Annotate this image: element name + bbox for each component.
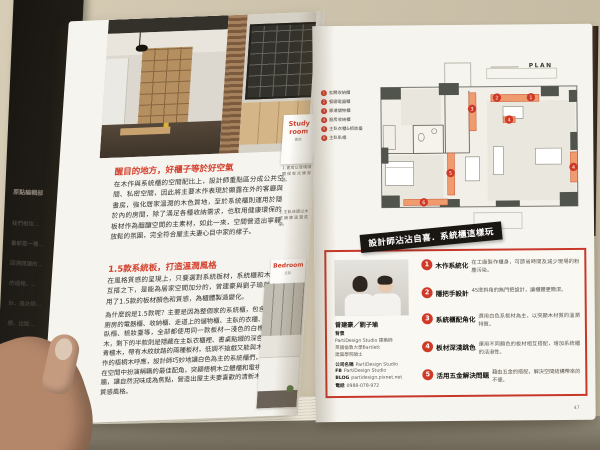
tip-num-icon: 1 — [421, 259, 432, 270]
company-row: 公司名稱PartiDesign Studio — [335, 361, 398, 368]
tip-num-icon: 2 — [422, 287, 433, 298]
svg-text:3: 3 — [470, 107, 473, 113]
white-cabinet — [102, 58, 129, 125]
tip-item-3: 3 系統櫃配角化 選用白色系板材為主，以突顯木材質的溫潤特質。 — [422, 312, 580, 329]
tip-title: 活用五金解決問題 — [436, 370, 489, 380]
tip-item-4: 4 板材深淺跳色 運用不同顏色的板材相互搭配，增加系統櫃的活潑性。 — [422, 340, 580, 357]
svg-text:4: 4 — [508, 117, 511, 123]
section1-body: 在木作與系統櫃的空間配比上，設計師重點區分成公共空間、私密空間，因此將主要木作表… — [110, 173, 284, 242]
right-page-number: 47 — [574, 406, 580, 411]
tip-title: 板材深淺跳色 — [436, 342, 476, 352]
tip-title: 木作系統化 — [435, 260, 468, 270]
tip-num-icon: 4 — [422, 341, 433, 352]
blog-row: BLOGpartidesign.pixnet.net — [335, 375, 402, 381]
tip-desc: 運用不同顏色的板材相互搭配，增加系統櫃的活潑性。 — [479, 341, 581, 357]
svg-text:1: 1 — [529, 95, 532, 101]
svg-text:4: 4 — [572, 165, 575, 171]
yellow-chair — [164, 123, 169, 128]
tip-desc: 選用白色系板材為主，以突顯木材質的溫潤特質。 — [478, 313, 580, 329]
thumb-nail — [53, 337, 74, 362]
designer-portrait — [334, 259, 408, 316]
tel-row: 電話0988-078-972 — [335, 383, 379, 389]
company-value: PartiDesign Studio — [356, 362, 398, 367]
floor-plan: 2 1 3 4 4 5 6 — [353, 58, 591, 246]
blog-label: BLOG — [335, 376, 349, 381]
fb-value: PartiDesign Studio — [344, 369, 386, 374]
head — [353, 279, 366, 293]
tip-desc: 藉由五金的搭配，解決空間結構帶來的不便。 — [492, 369, 580, 385]
svg-text:5: 5 — [449, 171, 452, 177]
black-page-line: 書都是一種… — [11, 239, 44, 248]
section2-body-2: 為什麼說是1.5款呢？主要是因為整個家的系統櫃，包含廚房的電器櫃、收納櫃、走道上… — [100, 305, 266, 398]
tip-title: 系統櫃配角化 — [436, 314, 476, 324]
tip-num-icon: 3 — [422, 313, 433, 324]
background-line: 英國倫敦大學Bartlett — [335, 345, 380, 351]
gutter-shadow-right — [312, 26, 337, 422]
tip-desc: 在工廠製作櫃身，可節省時間及減少現場的粉塵污染。 — [471, 259, 579, 275]
background-line: 建築學院碩士 — [335, 352, 363, 358]
left-page: Study room 書房 1.書房以玻璃隔間保有光線穿透。 2.主臥床頭以木皮… — [42, 12, 325, 425]
background-line: PartiDesign Studio 建築師 — [335, 338, 393, 345]
wood-shelf-grid — [138, 47, 193, 126]
head — [378, 279, 392, 293]
tel-value: 0988-078-972 — [347, 384, 380, 389]
svg-text:6: 6 — [422, 200, 425, 206]
black-page-heading: 原點編輯部 — [13, 187, 43, 197]
shirt — [371, 293, 401, 315]
hair — [377, 276, 392, 285]
svg-text:2: 2 — [495, 95, 498, 101]
kitchen-photo — [100, 15, 229, 158]
designer-names: 曾建豪／劉子瑜 — [335, 320, 378, 329]
tip-num-icon: 5 — [422, 369, 433, 380]
black-page-line: 的過程，… — [9, 279, 37, 288]
fb-row: FBPartiDesign Studio — [335, 369, 386, 374]
black-page-line: 感、出版… — [7, 319, 35, 328]
section2-body-1: 在風格質感的呈現上，只要選對系統板材，系統櫃和木作互搭之下，是能為居家空間加分的… — [106, 270, 278, 308]
black-page-line: 計、設計師… — [8, 299, 41, 308]
black-page-line: 回溯閱讀的… — [10, 259, 43, 268]
book-photo-scene: 原點編輯部 我們相信… 書都是一種… 回溯閱讀的… 的過程，… 計、設計師… 感… — [0, 0, 600, 450]
tip-desc: 45度斜角的無門把設計，讓櫃體更簡潔。 — [472, 287, 580, 295]
company-label: 公司名稱 — [335, 363, 353, 368]
right-page: PLAN 1 玄關收納櫃 2 餐廳電器櫃 3 廊道儲物櫃 4 廚房收納櫃 5 主… — [312, 24, 595, 422]
tip-item-2: 2 隱把手設計 45度斜角的無門把設計，讓櫃體更簡潔。 — [422, 286, 580, 298]
tip-item-1: 1 木作系統化 在工廠製作櫃身，可節省時間及減少現場的粉塵污染。 — [421, 258, 579, 275]
hair — [352, 276, 367, 292]
designer-profile-box: 曾建豪／劉子瑜 背景 PartiDesign Studio 建築師 英國倫敦大學… — [324, 248, 587, 398]
black-page-line: 我們相信… — [12, 219, 40, 228]
blog-value: partidesign.pixnet.net — [351, 375, 402, 380]
tip-title: 隱把手設計 — [436, 288, 469, 298]
tip-item-5: 5 活用五金解決問題 藉由五金的搭配，解決空間結構帶來的不便。 — [422, 368, 580, 385]
designer-man — [370, 278, 400, 315]
